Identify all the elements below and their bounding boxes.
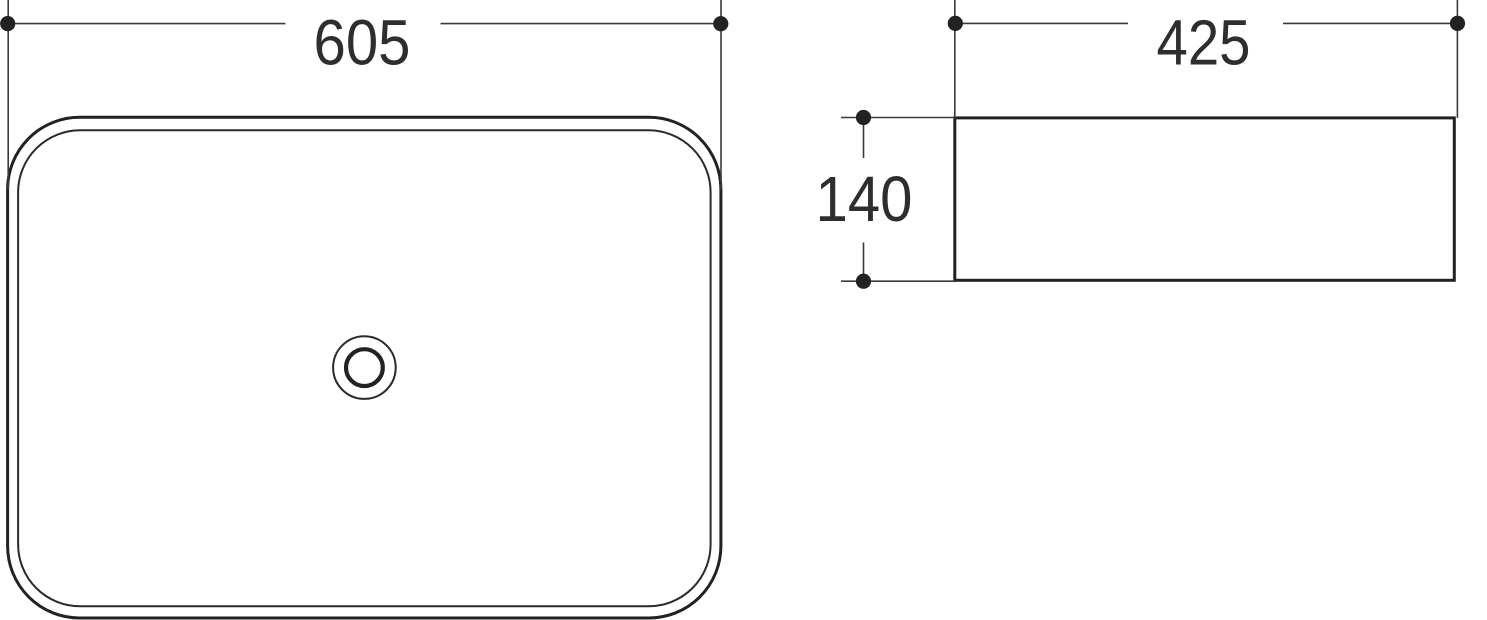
svg-text:140: 140 <box>816 163 913 235</box>
svg-text:605: 605 <box>314 7 411 79</box>
svg-text:425: 425 <box>1157 7 1251 79</box>
